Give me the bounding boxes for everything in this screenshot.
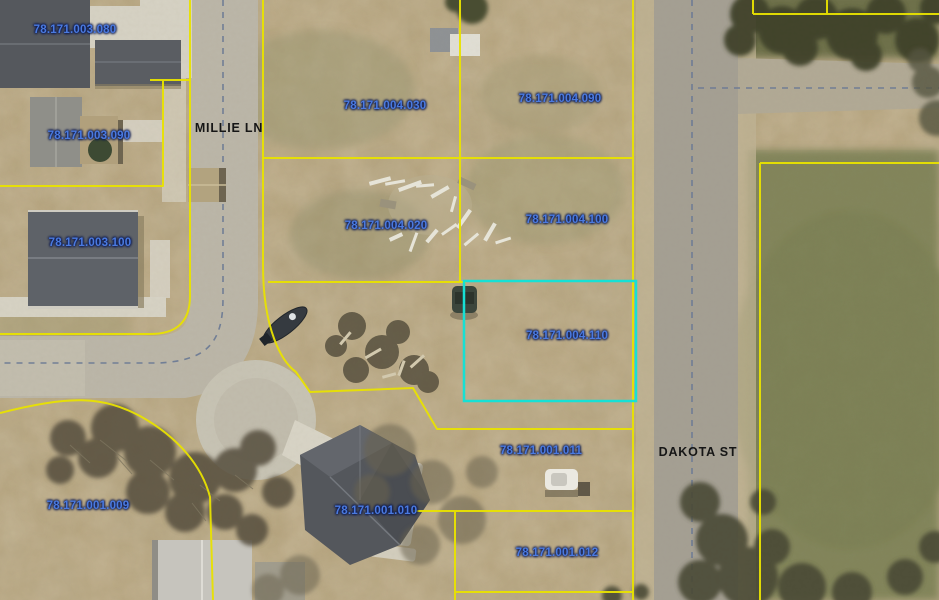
aerial-imagery [0,0,939,600]
aerial-map-canvas[interactable]: 78.171.003.080 78.171.004.030 78.171.004… [0,0,939,600]
